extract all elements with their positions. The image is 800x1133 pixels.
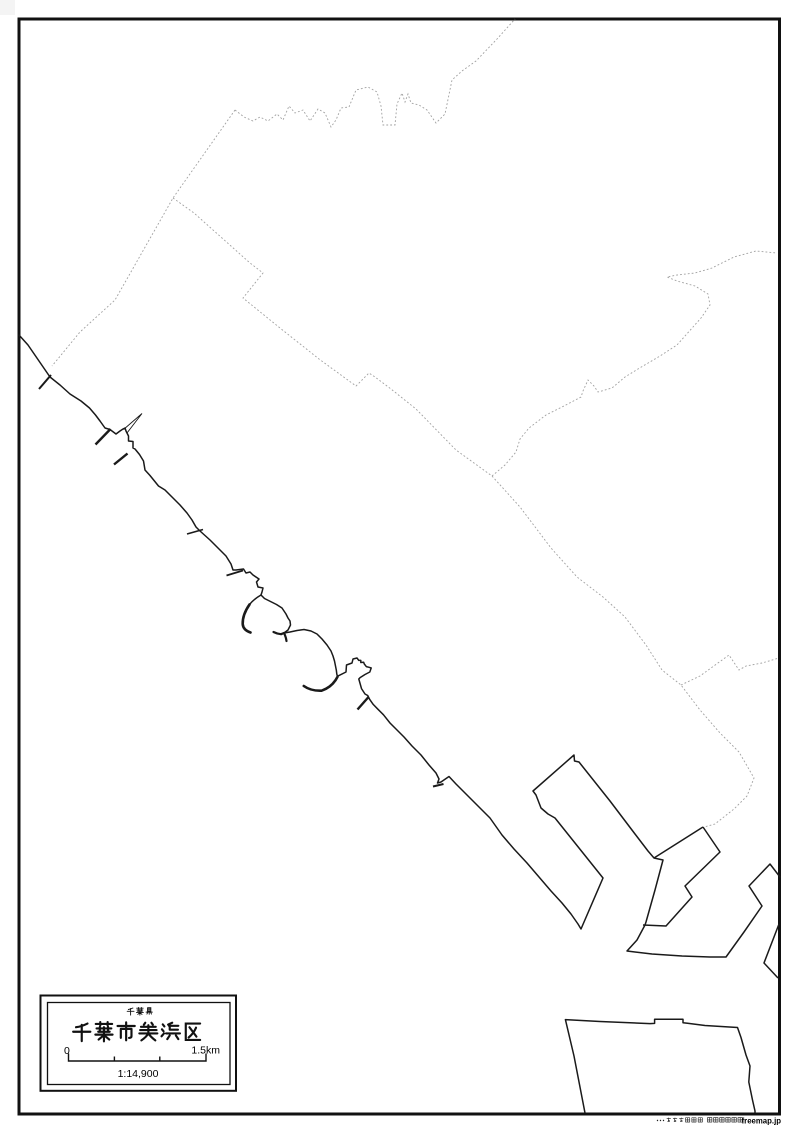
svg-text:freemap.jp: freemap.jp (742, 1117, 782, 1126)
svg-text:1:14,900: 1:14,900 (118, 1068, 159, 1080)
